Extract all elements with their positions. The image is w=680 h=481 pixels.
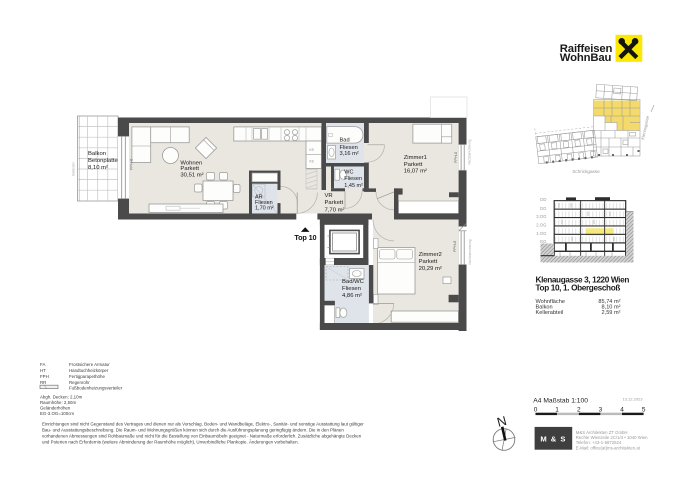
svg-text:Fliesen: Fliesen [342,286,361,292]
svg-text:Parkett: Parkett [419,259,438,265]
svg-text:5: 5 [642,406,646,413]
svg-text:Parkett: Parkett [404,162,423,168]
svg-text:Regenrohr: Regenrohr [69,380,90,385]
svg-text:Nachbarwohnung: Nachbarwohnung [468,239,472,264]
svg-text:Parkett: Parkett [325,200,344,206]
svg-text:DD: DD [540,197,546,202]
svg-text:Kellerabteil: Kellerabteil [536,310,564,316]
svg-text:Frostsichere Armatur: Frostsichere Armatur [69,362,110,367]
svg-text:Bad: Bad [340,137,350,143]
svg-text:FPH-0: FPH-0 [129,158,134,170]
svg-text:4: 4 [620,406,624,413]
svg-text:Balkon: Balkon [88,151,106,157]
svg-text:A4 Maßstab 1:100: A4 Maßstab 1:100 [533,398,588,405]
svg-text:FPH-0: FPH-0 [453,151,458,163]
svg-text:7,70 m²: 7,70 m² [325,207,345,213]
svg-text:13.12.2023: 13.12.2023 [622,396,643,401]
svg-text:M & S: M & S [540,435,566,444]
svg-text:FPH-0: FPH-0 [452,240,457,252]
svg-text:Parkett: Parkett [180,166,199,172]
svg-text:2: 2 [577,406,581,413]
svg-text:Einrichtungen sind nicht Gegen: Einrichtungen sind nicht Gegenstand des … [42,421,364,426]
svg-text:2,59 m²: 2,59 m² [602,310,621,316]
svg-text:8,10 m²: 8,10 m² [88,165,108,171]
svg-text:3: 3 [599,406,603,413]
svg-text:Geländerhöhen: Geländerhöhen [40,406,71,411]
svg-text:und Poterien nach Erfordernis: und Poterien nach Erfordernis (weitere A… [42,438,299,444]
svg-text:Bad/WC: Bad/WC [342,279,365,285]
svg-text:FPH: FPH [40,374,49,379]
svg-text:1: 1 [555,406,559,413]
svg-text:Fliesen: Fliesen [344,176,362,182]
svg-text:30,51 m²: 30,51 m² [180,173,203,179]
svg-text:Bau- und Ausstattungsbeschreib: Bau- und Ausstattungsbeschreibung. Die R… [42,427,344,432]
svg-text:FA: FA [40,362,45,367]
svg-text:Fußbodenheizungsverteiler: Fußbodenheizungsverteiler [69,386,123,391]
svg-text:Top 10: Top 10 [294,233,316,242]
svg-text:RR: RR [40,380,46,385]
svg-text:20,29 m²: 20,29 m² [419,266,442,272]
svg-text:vorhandenen Abmessungen sind R: vorhandenen Abmessungen sind Rohbaumaße … [42,433,362,438]
svg-text:EG-3.OG=100cm: EG-3.OG=100cm [40,411,74,416]
svg-text:Raumhöhe: 2,50m: Raumhöhe: 2,50m [40,400,76,405]
svg-text:16,07 m²: 16,07 m² [404,169,427,175]
svg-text:KS: KS [310,148,314,152]
svg-text:Handtuchheizkörper: Handtuchheizkörper [69,368,109,373]
svg-text:KS: KS [310,160,314,164]
svg-text:1,45 m²: 1,45 m² [344,183,363,189]
svg-text:Zimmer2: Zimmer2 [419,252,442,258]
svg-text:EG: EG [540,239,547,244]
svg-text:E-Mail: office(at)ms-architekt: E-Mail: office(at)ms-architekten.at [576,445,641,450]
svg-text:1,70 m²: 1,70 m² [255,206,274,212]
svg-text:VR: VR [325,193,333,199]
svg-text:3.OG: 3.OG [536,214,547,219]
svg-text:HT: HT [40,368,46,373]
svg-text:DG: DG [540,206,547,211]
svg-text:Abgh. Decken: 2,10m: Abgh. Decken: 2,10m [40,394,83,399]
svg-text:1.OG: 1.OG [536,231,547,236]
svg-text:Geländer: Geländer [72,161,76,176]
svg-text:Nachbarwohnung: Nachbarwohnung [468,139,472,164]
svg-text:Top 10, 1. Obergeschoß: Top 10, 1. Obergeschoß [536,284,621,293]
svg-text:3,16 m²: 3,16 m² [340,151,359,157]
svg-text:Betonplatten: Betonplatten [88,158,121,164]
svg-text:Fertigparapethöhe: Fertigparapethöhe [69,374,105,379]
svg-text:0: 0 [534,406,538,413]
svg-text:2.OG: 2.OG [536,223,547,228]
svg-text:WohnBau: WohnBau [560,52,612,64]
svg-text:Schrickgasse: Schrickgasse [572,169,600,174]
svg-text:Zimmer1: Zimmer1 [404,155,427,161]
svg-text:4,86 m²: 4,86 m² [342,293,362,299]
svg-text:WC: WC [344,170,353,176]
